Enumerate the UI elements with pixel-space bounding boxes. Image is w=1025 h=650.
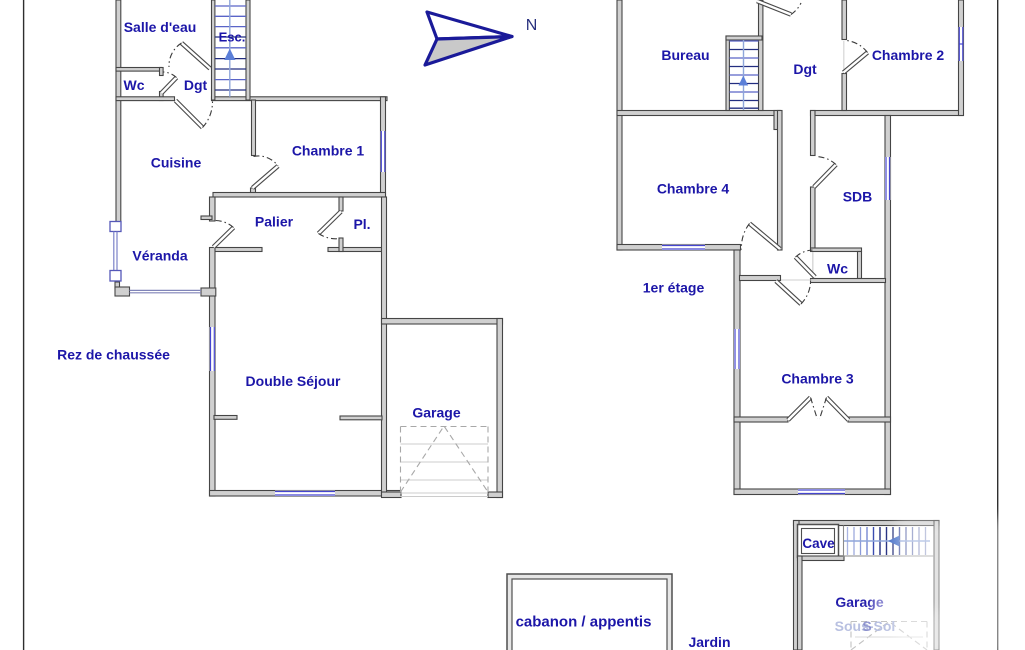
svg-text:Chambre 1: Chambre 1 — [292, 143, 365, 159]
svg-text:Cuisine: Cuisine — [151, 155, 202, 171]
svg-text:Bureau: Bureau — [661, 47, 709, 63]
svg-text:Palier: Palier — [255, 214, 294, 230]
svg-text:1er étage: 1er étage — [643, 280, 705, 296]
svg-text:Wc: Wc — [827, 261, 848, 277]
svg-text:cabanon / appentis: cabanon / appentis — [516, 614, 652, 631]
svg-text:Salle d'eau: Salle d'eau — [124, 19, 197, 35]
svg-text:Chambre 4: Chambre 4 — [657, 181, 730, 197]
svg-text:Chambre 3: Chambre 3 — [781, 371, 854, 387]
svg-text:Rez de chaussée: Rez de chaussée — [57, 347, 170, 363]
svg-text:Garage: Garage — [412, 405, 460, 421]
svg-text:SDB: SDB — [843, 189, 873, 205]
svg-text:N: N — [526, 17, 538, 34]
svg-text:Jardin: Jardin — [688, 634, 730, 650]
svg-text:Wc: Wc — [124, 77, 145, 93]
svg-text:Dgt: Dgt — [184, 77, 208, 93]
svg-text:Pl.: Pl. — [353, 216, 370, 232]
svg-text:Dgt: Dgt — [793, 61, 817, 77]
svg-text:Chambre 2: Chambre 2 — [872, 47, 945, 63]
svg-text:Esc.: Esc. — [219, 30, 246, 45]
svg-text:Véranda: Véranda — [132, 248, 187, 264]
svg-text:Double Séjour: Double Séjour — [246, 373, 341, 389]
svg-text:Cave: Cave — [802, 536, 835, 551]
